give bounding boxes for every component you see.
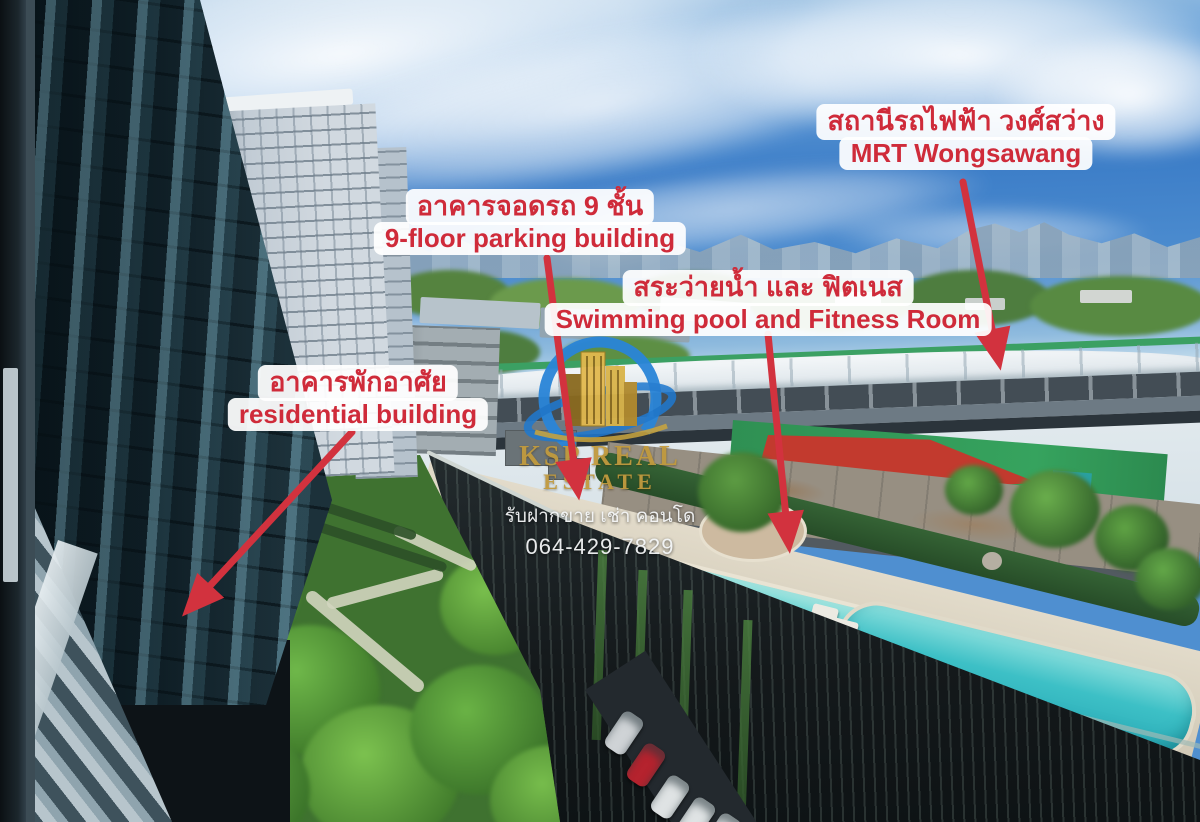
label-residential-building: อาคารพักอาศัย residential building bbox=[228, 365, 488, 431]
label-pool-english: Swimming pool and Fitness Room bbox=[545, 303, 992, 336]
label-parking-english: 9-floor parking building bbox=[374, 222, 686, 255]
label-pool-thai: สระว่ายน้ำ และ ฟิตเนส bbox=[622, 270, 914, 306]
label-pool-fitness: สระว่ายน้ำ และ ฟิตเนส Swimming pool and … bbox=[545, 270, 992, 336]
label-mrt-english: MRT Wongsawang bbox=[840, 137, 1093, 170]
label-parking-thai: อาคารจอดรถ 9 ชั้น bbox=[406, 189, 654, 225]
arrow-head-pool bbox=[773, 514, 799, 545]
label-residential-thai: อาคารพักอาศัย bbox=[258, 365, 458, 401]
arrow-head-parking bbox=[561, 461, 587, 492]
arrow-line-pool bbox=[768, 334, 786, 517]
label-residential-english: residential building bbox=[228, 398, 488, 431]
label-mrt-thai: สถานีรถไฟฟ้า วงศ์สว่าง bbox=[816, 104, 1115, 140]
annotated-condo-photo: KSP REAL ESTATE รับฝากขาย เช่า คอนโด 064… bbox=[0, 0, 1200, 822]
arrow-line-residential bbox=[207, 432, 352, 589]
label-parking-building: อาคารจอดรถ 9 ชั้น 9-floor parking buildi… bbox=[374, 189, 686, 255]
label-mrt-station: สถานีรถไฟฟ้า วงศ์สว่าง MRT Wongsawang bbox=[816, 104, 1115, 170]
